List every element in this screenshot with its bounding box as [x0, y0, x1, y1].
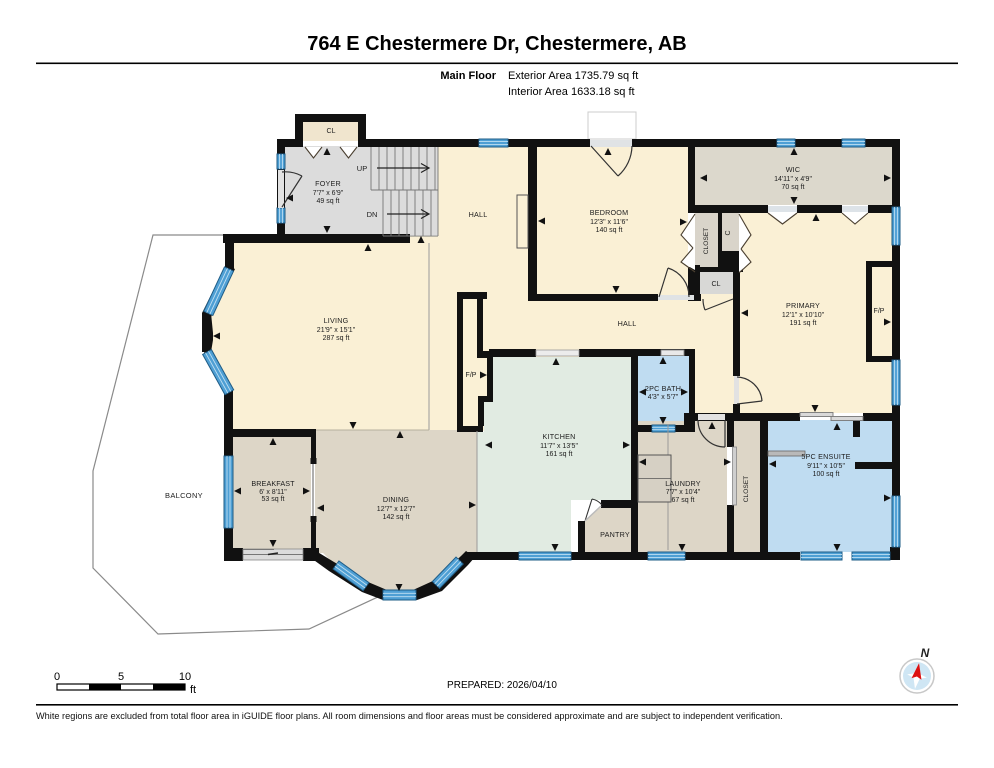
svg-text:CL: CL — [712, 281, 721, 288]
svg-text:5PC ENSUITE: 5PC ENSUITE — [801, 452, 850, 461]
svg-text:C: C — [725, 230, 732, 235]
svg-text:HALL: HALL — [469, 210, 488, 219]
svg-text:49 sq ft: 49 sq ft — [317, 198, 340, 205]
svg-text:6' x 8'11": 6' x 8'11" — [259, 489, 287, 496]
svg-text:Interior Area 1633.18 sq ft: Interior Area 1633.18 sq ft — [508, 86, 635, 98]
svg-text:12'3" x 11'6": 12'3" x 11'6" — [590, 219, 628, 226]
svg-text:67 sq ft: 67 sq ft — [672, 497, 695, 504]
svg-text:7'7" x 6'9": 7'7" x 6'9" — [313, 190, 344, 197]
svg-text:11'7" x 13'5": 11'7" x 13'5" — [540, 443, 578, 450]
svg-text:N: N — [921, 646, 930, 660]
svg-text:HALL: HALL — [618, 319, 637, 328]
svg-text:CL: CL — [327, 128, 336, 135]
svg-text:12'1" x 10'10": 12'1" x 10'10" — [782, 312, 825, 319]
svg-text:7'7" x 10'4": 7'7" x 10'4" — [666, 489, 701, 496]
svg-text:4'3" x 5'7": 4'3" x 5'7" — [648, 394, 679, 401]
svg-text:BEDROOM: BEDROOM — [590, 208, 629, 217]
svg-text:70 sq ft: 70 sq ft — [782, 184, 805, 191]
svg-text:PRIMARY: PRIMARY — [786, 301, 820, 310]
svg-text:764 E Chestermere Dr, Chesterm: 764 E Chestermere Dr, Chestermere, AB — [307, 33, 686, 55]
svg-text:LIVING: LIVING — [324, 316, 349, 325]
svg-text:9'11" x 10'5": 9'11" x 10'5" — [807, 463, 845, 470]
svg-text:12'7" x 12'7": 12'7" x 12'7" — [377, 506, 416, 513]
svg-text:PREPARED: 2026/04/10: PREPARED: 2026/04/10 — [447, 680, 557, 691]
svg-text:53 sq ft: 53 sq ft — [262, 496, 285, 503]
svg-text:UP: UP — [357, 164, 367, 173]
svg-text:BALCONY: BALCONY — [165, 491, 203, 500]
svg-text:161 sq ft: 161 sq ft — [546, 451, 573, 458]
svg-text:F/P: F/P — [466, 372, 477, 379]
svg-text:WIC: WIC — [786, 165, 801, 174]
svg-text:Main Floor: Main Floor — [440, 70, 496, 82]
svg-text:140 sq ft: 140 sq ft — [596, 227, 623, 234]
svg-text:F/P: F/P — [874, 308, 885, 315]
svg-text:2PC BATH: 2PC BATH — [645, 384, 681, 393]
svg-text:5: 5 — [118, 671, 124, 683]
svg-text:KITCHEN: KITCHEN — [543, 432, 576, 441]
svg-text:21'9" x 15'1": 21'9" x 15'1" — [317, 327, 356, 334]
svg-text:ft: ft — [190, 684, 196, 696]
svg-text:PANTRY: PANTRY — [600, 530, 630, 539]
svg-text:White regions are excluded fro: White regions are excluded from total fl… — [36, 711, 783, 721]
svg-text:Exterior Area 1735.79 sq ft: Exterior Area 1735.79 sq ft — [508, 70, 638, 82]
svg-text:100 sq ft: 100 sq ft — [813, 471, 840, 478]
svg-text:CLOSET: CLOSET — [743, 476, 750, 502]
svg-text:DINING: DINING — [383, 495, 410, 504]
svg-text:DN: DN — [367, 210, 378, 219]
svg-text:FOYER: FOYER — [315, 179, 341, 188]
svg-text:BREAKFAST: BREAKFAST — [251, 479, 295, 488]
svg-text:10: 10 — [179, 671, 191, 683]
svg-text:CLOSET: CLOSET — [703, 228, 710, 254]
svg-text:14'11" x 4'9": 14'11" x 4'9" — [774, 176, 812, 183]
svg-text:0: 0 — [54, 671, 60, 683]
svg-text:142 sq ft: 142 sq ft — [383, 514, 410, 521]
svg-text:LAUNDRY: LAUNDRY — [665, 479, 701, 488]
svg-text:191 sq ft: 191 sq ft — [790, 320, 817, 327]
svg-text:287 sq ft: 287 sq ft — [323, 335, 350, 342]
